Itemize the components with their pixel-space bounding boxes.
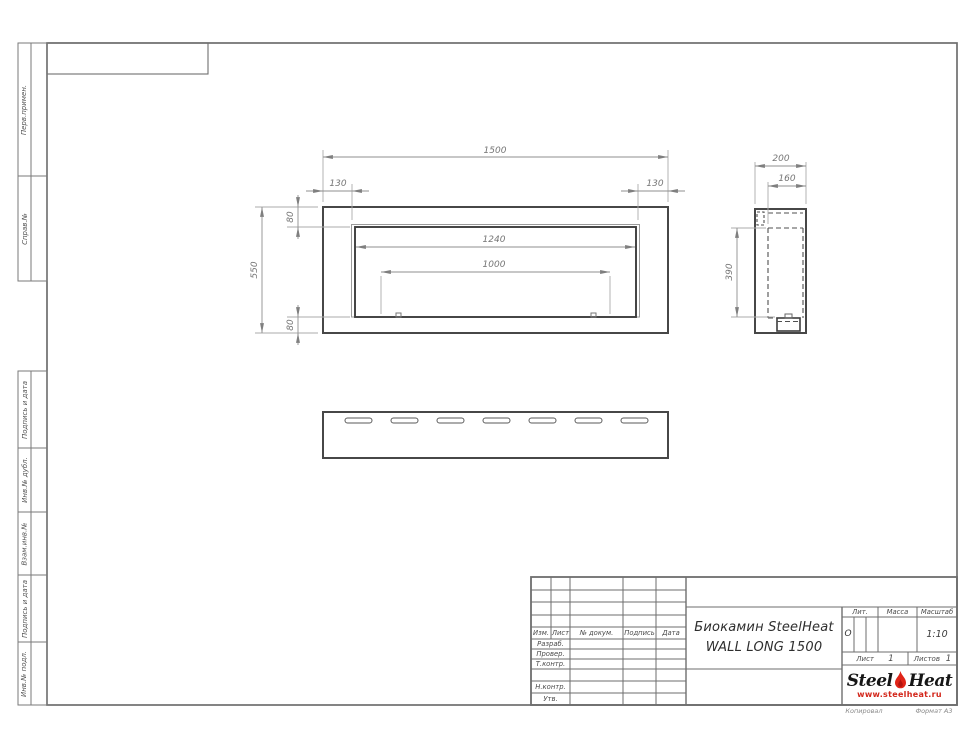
row-nkontr: Н.контр.: [531, 681, 570, 693]
title-line-1: Биокамин SteelHeat: [694, 618, 833, 638]
steelheat-logo: Steel Heat www.steelheat.ru: [842, 665, 957, 705]
col-list: Лист: [551, 627, 570, 639]
dim-inner-depth: 160: [778, 174, 795, 184]
strip-inv-podl: Инв.№ подл.: [18, 642, 31, 705]
strip-perv-primen: Перв.примен.: [18, 43, 31, 176]
lit-value: О: [842, 617, 854, 652]
sheets-label: Листов: [914, 655, 940, 663]
col-podpis: Подпись: [623, 627, 656, 639]
strip-podpis-data-2: Подпись и дата: [18, 575, 31, 642]
format-label: Формат А3: [908, 707, 960, 715]
dim-depth: 200: [772, 154, 789, 164]
lit-label: Лит.: [842, 607, 878, 617]
drawing-sheet: { "drawing": { "title_line1": "Биокамин …: [0, 0, 970, 749]
copied-label: Копировал: [829, 707, 899, 715]
logo-url: www.steelheat.ru: [857, 690, 942, 699]
mass-label: Масса: [878, 607, 917, 617]
sheet-value: 1: [888, 654, 893, 664]
document-title: Биокамин SteelHeat WALL LONG 1500: [686, 607, 842, 668]
flame-icon: [893, 671, 908, 690]
col-izm: Изм.: [531, 627, 551, 639]
strip-inv-dubl: Инв.№ дубл.: [18, 448, 31, 512]
col-ndokum: № докум.: [570, 627, 623, 639]
dim-top-offset: 80: [286, 211, 296, 223]
logo-heat: Heat: [908, 671, 952, 691]
burner-block: [777, 318, 800, 331]
dim-right-offset: 130: [646, 179, 663, 189]
scale-label: Масштаб: [917, 607, 957, 617]
sheet-frame: [47, 43, 957, 705]
logo-steel: Steel: [847, 671, 893, 691]
dim-overall-height: 550: [250, 261, 260, 278]
title-line-2: WALL LONG 1500: [706, 638, 823, 658]
dim-bottom-offset: 80: [286, 319, 296, 331]
sheets-cell: Листов 1: [908, 652, 957, 665]
row-prover: Провер.: [531, 649, 570, 659]
scale-value: 1:10: [917, 617, 957, 652]
strip-sprav-no: Справ.№: [18, 176, 31, 281]
row-utv: Утв.: [531, 693, 570, 705]
side-view: 200 160 390: [725, 154, 806, 333]
vent-slots: [345, 418, 648, 423]
dim-left-offset: 130: [329, 179, 346, 189]
sheet-label: Лист: [856, 655, 874, 663]
col-data: Дата: [656, 627, 686, 639]
dim-overall-width: 1500: [484, 146, 507, 156]
bottom-view: [323, 412, 668, 458]
strip-vzam-inv: Взам.инв.№: [18, 512, 31, 575]
sheets-value: 1: [946, 654, 951, 664]
row-tkontr: Т.контр.: [531, 659, 570, 669]
dim-opening-height: 390: [725, 263, 735, 280]
strip-podpis-data-1: Подпись и дата: [18, 371, 31, 448]
dim-opening-width: 1240: [483, 235, 506, 245]
top-left-stamp-box: [47, 43, 208, 74]
front-view: 1500 130 130 1240 1000 550 80 80: [250, 146, 685, 345]
dim-burner-width: 1000: [483, 260, 506, 270]
row-razrab: Разраб.: [531, 639, 570, 649]
sheet-cell: Лист 1: [842, 652, 908, 665]
